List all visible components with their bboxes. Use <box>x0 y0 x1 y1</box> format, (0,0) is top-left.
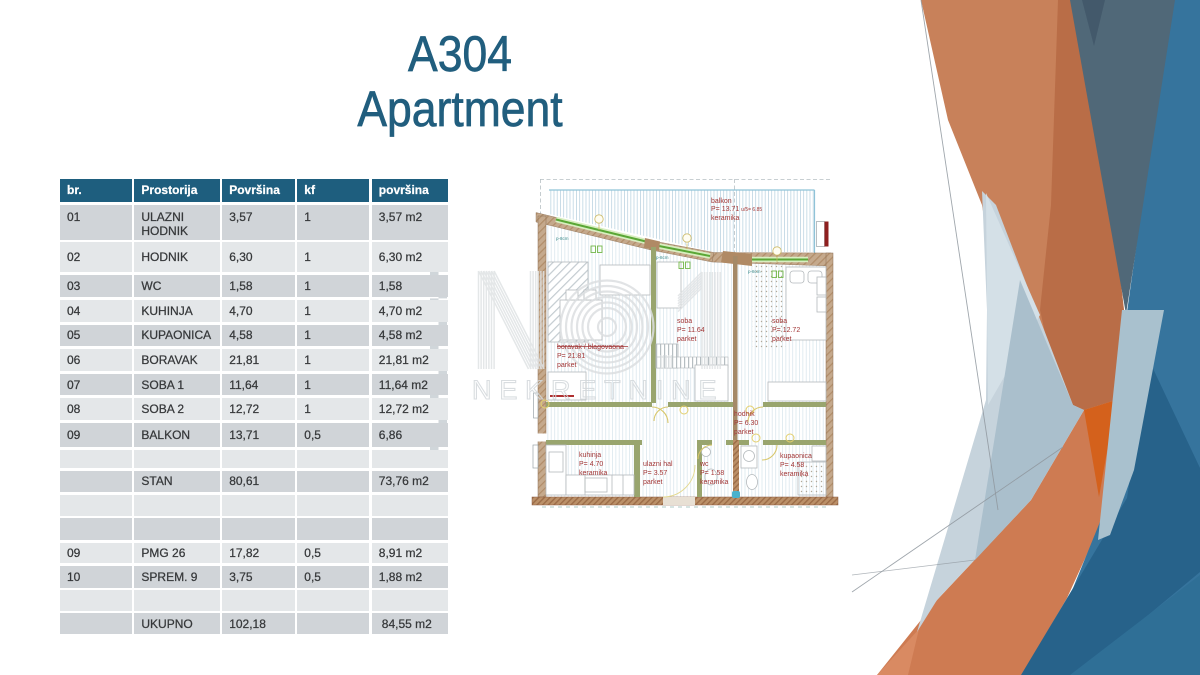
svg-text:boravak / blagovaona: boravak / blagovaona <box>557 344 624 351</box>
svg-text:parket: parket <box>772 336 792 343</box>
svg-text:wc: wc <box>699 461 709 468</box>
svg-text:keramika: keramika <box>780 471 809 478</box>
svg-text:hodnik: hodnik <box>734 411 755 418</box>
svg-text:keramika: keramika <box>700 479 729 486</box>
svg-text:kuhinja: kuhinja <box>579 452 601 459</box>
svg-text:P= 1.58: P= 1.58 <box>700 470 724 477</box>
svg-text:ulazni hal: ulazni hal <box>643 461 673 468</box>
svg-text:p-8cm: p-8cm <box>656 255 669 260</box>
svg-text:P= 3.57: P= 3.57 <box>643 470 667 477</box>
svg-text:P= 4.58: P= 4.58 <box>780 462 804 469</box>
svg-text:P= 4.70: P= 4.70 <box>579 461 603 468</box>
svg-text:p-8cm: p-8cm <box>748 269 761 274</box>
svg-text:p-8cm: p-8cm <box>556 236 569 241</box>
svg-text:balkon: balkon <box>711 198 732 205</box>
svg-text:P= 11.64: P= 11.64 <box>677 327 705 334</box>
svg-text:parket: parket <box>677 336 697 343</box>
svg-text:parket: parket <box>557 362 577 369</box>
svg-text:parket: parket <box>734 429 754 436</box>
svg-text:P= 13.71 u/5= 6.85: P= 13.71 u/5= 6.85 <box>711 206 762 213</box>
svg-text:soba: soba <box>677 318 692 325</box>
svg-text:parket: parket <box>643 479 663 486</box>
svg-text:soba: soba <box>772 318 787 325</box>
svg-text:P= 21.81: P= 21.81 <box>557 353 585 360</box>
svg-text:kupaonica: kupaonica <box>780 453 812 460</box>
svg-text:keramika: keramika <box>579 470 608 477</box>
svg-text:keramika: keramika <box>711 215 740 222</box>
svg-text:P= 12.72: P= 12.72 <box>772 327 800 334</box>
svg-text:NEKRETNINE: NEKRETNINE <box>472 375 723 405</box>
svg-text:P= 6.30: P= 6.30 <box>734 420 758 427</box>
